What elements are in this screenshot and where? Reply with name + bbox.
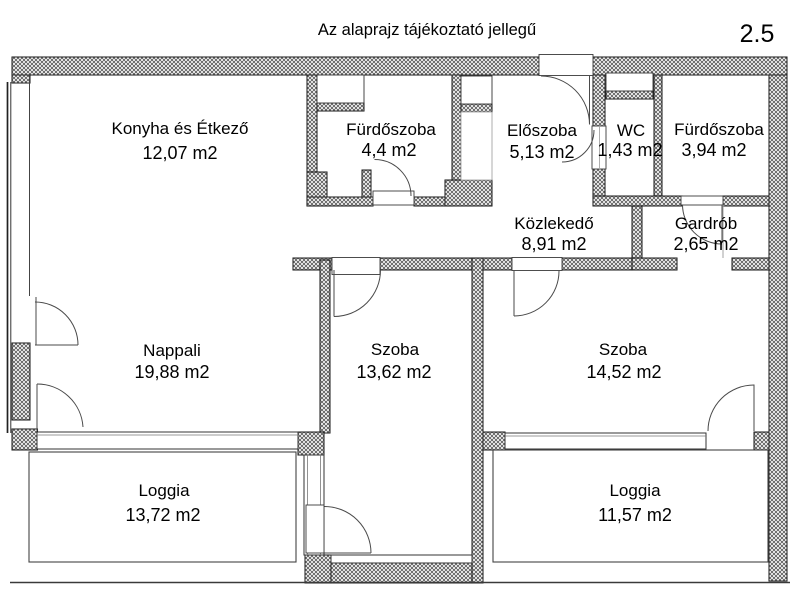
svg-text:13,72 m2: 13,72 m2	[125, 505, 200, 525]
svg-text:Konyha és Étkező: Konyha és Étkező	[111, 119, 248, 138]
svg-text:Loggia: Loggia	[609, 481, 661, 500]
svg-text:1,43 m2: 1,43 m2	[597, 140, 662, 160]
svg-text:5,13 m2: 5,13 m2	[509, 142, 574, 162]
svg-text:19,88 m2: 19,88 m2	[134, 362, 209, 382]
svg-text:Szoba: Szoba	[599, 340, 648, 359]
svg-text:2,65 m2: 2,65 m2	[673, 234, 738, 254]
svg-text:Nappali: Nappali	[143, 341, 201, 360]
svg-text:12,07 m2: 12,07 m2	[142, 143, 217, 163]
svg-text:WC: WC	[617, 121, 645, 140]
svg-text:Loggia: Loggia	[138, 481, 190, 500]
svg-text:8,91 m2: 8,91 m2	[521, 234, 586, 254]
svg-text:13,62 m2: 13,62 m2	[356, 362, 431, 382]
svg-text:Fürdőszoba: Fürdőszoba	[346, 120, 436, 139]
svg-text:Szoba: Szoba	[371, 340, 420, 359]
svg-text:3,94 m2: 3,94 m2	[681, 140, 746, 160]
svg-text:Közlekedő: Közlekedő	[514, 214, 593, 233]
svg-text:4,4 m2: 4,4 m2	[361, 140, 416, 160]
svg-text:Előszoba: Előszoba	[507, 121, 577, 140]
svg-text:2.5: 2.5	[740, 20, 775, 48]
svg-text:11,57 m2: 11,57 m2	[598, 505, 672, 525]
svg-text:Fürdőszoba: Fürdőszoba	[674, 120, 764, 139]
svg-text:14,52 m2: 14,52 m2	[586, 362, 661, 382]
svg-text:Gardrób: Gardrób	[675, 214, 737, 233]
svg-text:Az alaprajz tájékoztató jelleg: Az alaprajz tájékoztató jellegű	[318, 21, 536, 39]
